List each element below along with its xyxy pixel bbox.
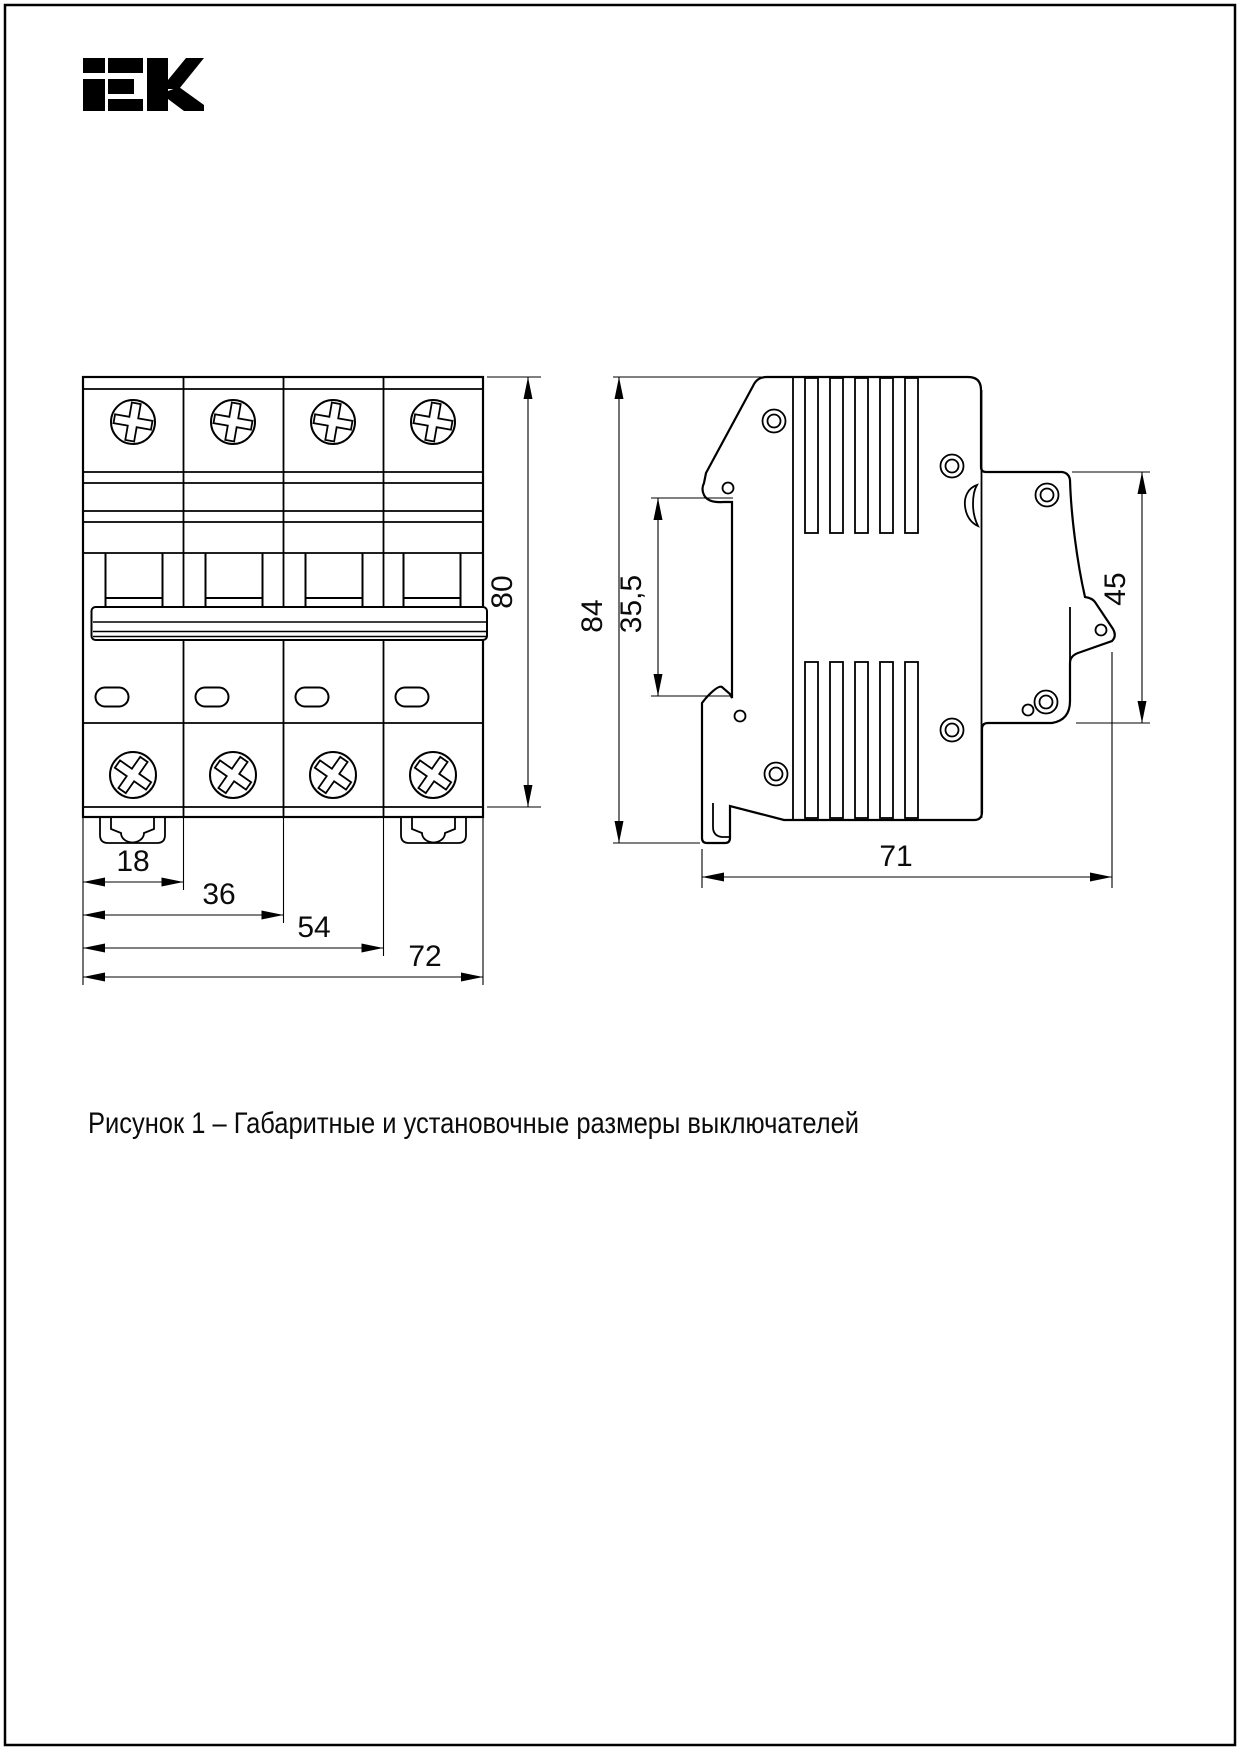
figure-caption: Рисунок 1 – Габаритные и установочные ра… (88, 1106, 859, 1139)
iek-logo (83, 58, 204, 111)
tie-bar (92, 607, 488, 640)
drawing-canvas: 80 18 36 54 72 (0, 0, 1240, 1750)
dim-module-width: 18 (116, 845, 149, 878)
side-view-drawing (702, 377, 1115, 843)
dim-total-width: 72 (408, 940, 441, 973)
dim-two-modules: 36 (202, 878, 235, 911)
page-border (5, 5, 1235, 1745)
dim-din-recess: 35,5 (615, 575, 648, 633)
dim-three-modules: 54 (297, 911, 330, 944)
dim-depth: 71 (879, 840, 912, 873)
document-page: 80 18 36 54 72 (0, 0, 1240, 1750)
dim-side-height: 84 (576, 599, 609, 632)
lever-hole-icon (1096, 625, 1107, 636)
dim-front-height: 80 (486, 575, 519, 608)
front-view-drawing (83, 377, 487, 843)
dim-front-face: 45 (1099, 572, 1132, 605)
